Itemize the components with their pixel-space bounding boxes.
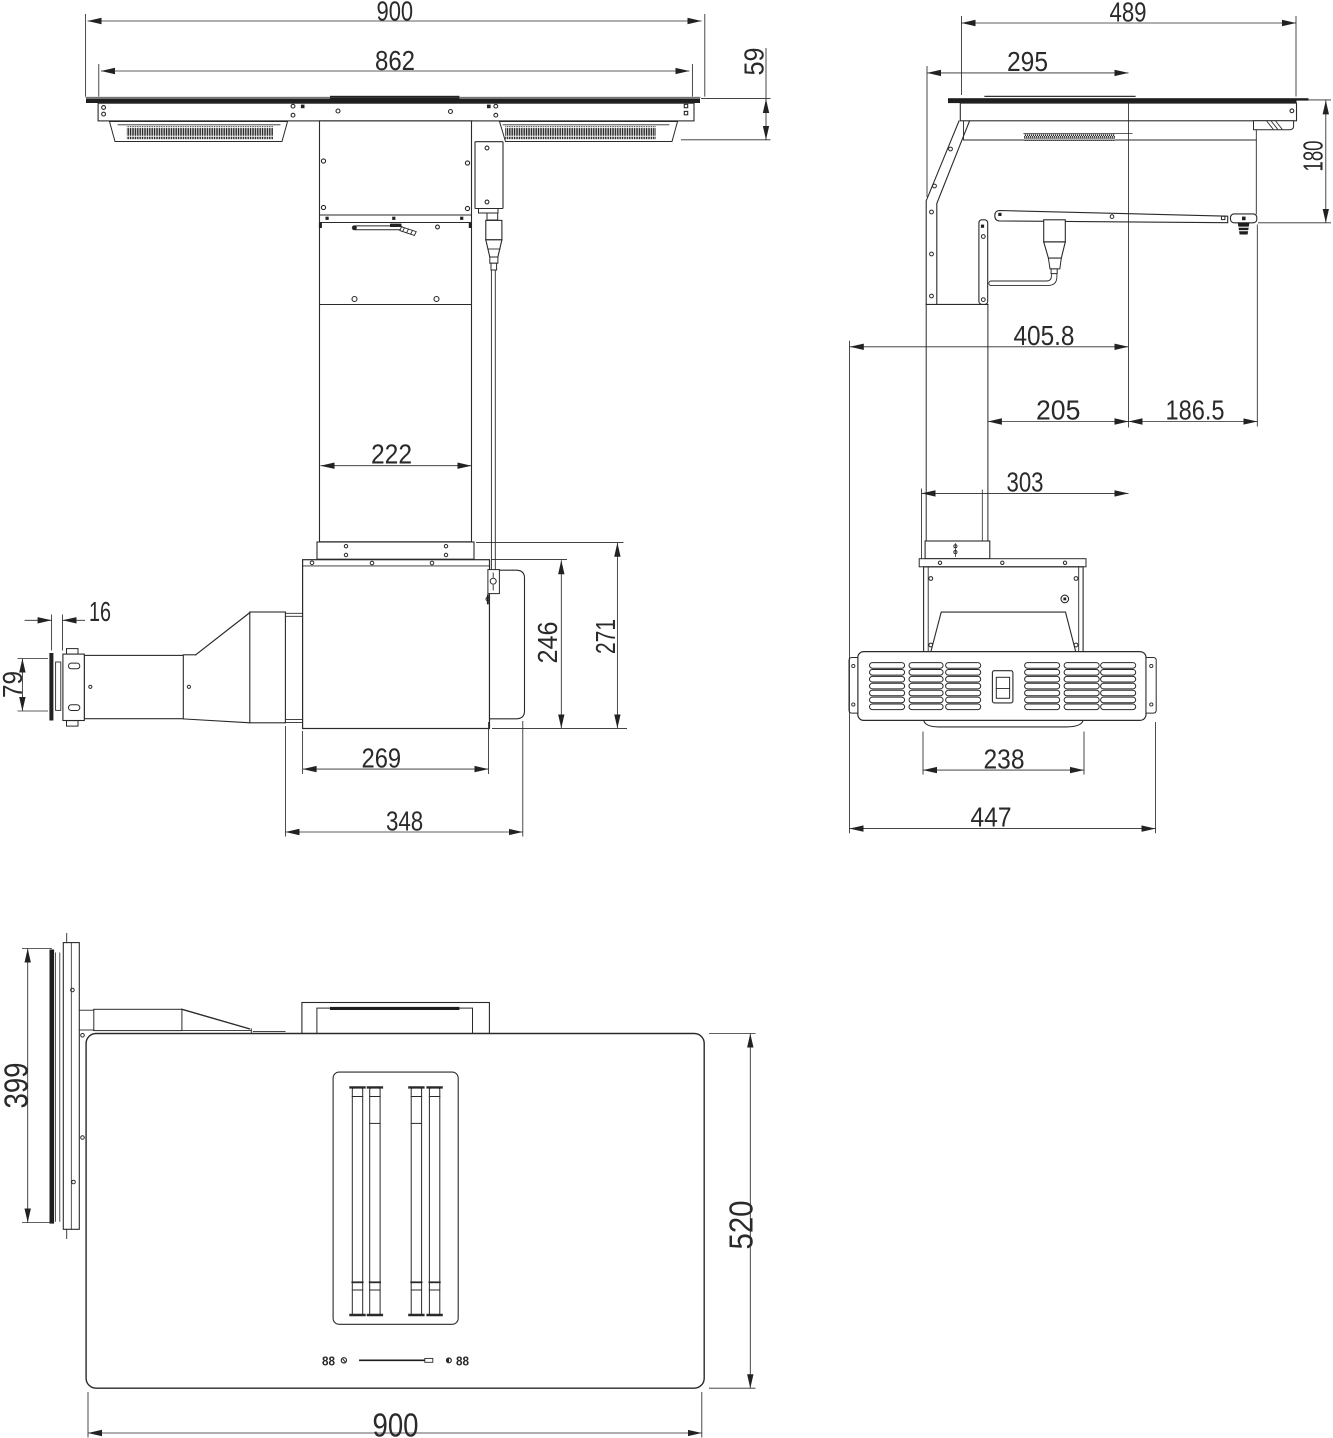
svg-text:405.8: 405.8 bbox=[1014, 320, 1075, 351]
svg-text:399: 399 bbox=[0, 1063, 35, 1109]
svg-text:246: 246 bbox=[532, 622, 563, 664]
svg-text:295: 295 bbox=[1007, 46, 1048, 77]
svg-text:447: 447 bbox=[971, 802, 1012, 833]
svg-text:88: 88 bbox=[456, 1353, 469, 1368]
svg-text:271: 271 bbox=[590, 619, 621, 654]
svg-text:59: 59 bbox=[739, 48, 770, 76]
svg-text:238: 238 bbox=[984, 744, 1025, 775]
svg-text:348: 348 bbox=[386, 806, 423, 837]
svg-text:900: 900 bbox=[373, 1407, 419, 1438]
svg-text:900: 900 bbox=[377, 0, 414, 27]
svg-text:520: 520 bbox=[723, 1201, 760, 1250]
svg-text:303: 303 bbox=[1007, 467, 1044, 498]
svg-text:489: 489 bbox=[1110, 0, 1147, 28]
svg-text:88: 88 bbox=[322, 1353, 335, 1368]
svg-text:222: 222 bbox=[371, 439, 412, 470]
svg-text:180: 180 bbox=[1298, 141, 1329, 172]
svg-text:16: 16 bbox=[89, 596, 111, 627]
svg-text:205: 205 bbox=[1036, 395, 1080, 426]
svg-text:269: 269 bbox=[362, 743, 402, 774]
svg-text:862: 862 bbox=[375, 45, 415, 76]
svg-text:186.5: 186.5 bbox=[1166, 395, 1225, 426]
svg-text:79: 79 bbox=[0, 671, 28, 698]
